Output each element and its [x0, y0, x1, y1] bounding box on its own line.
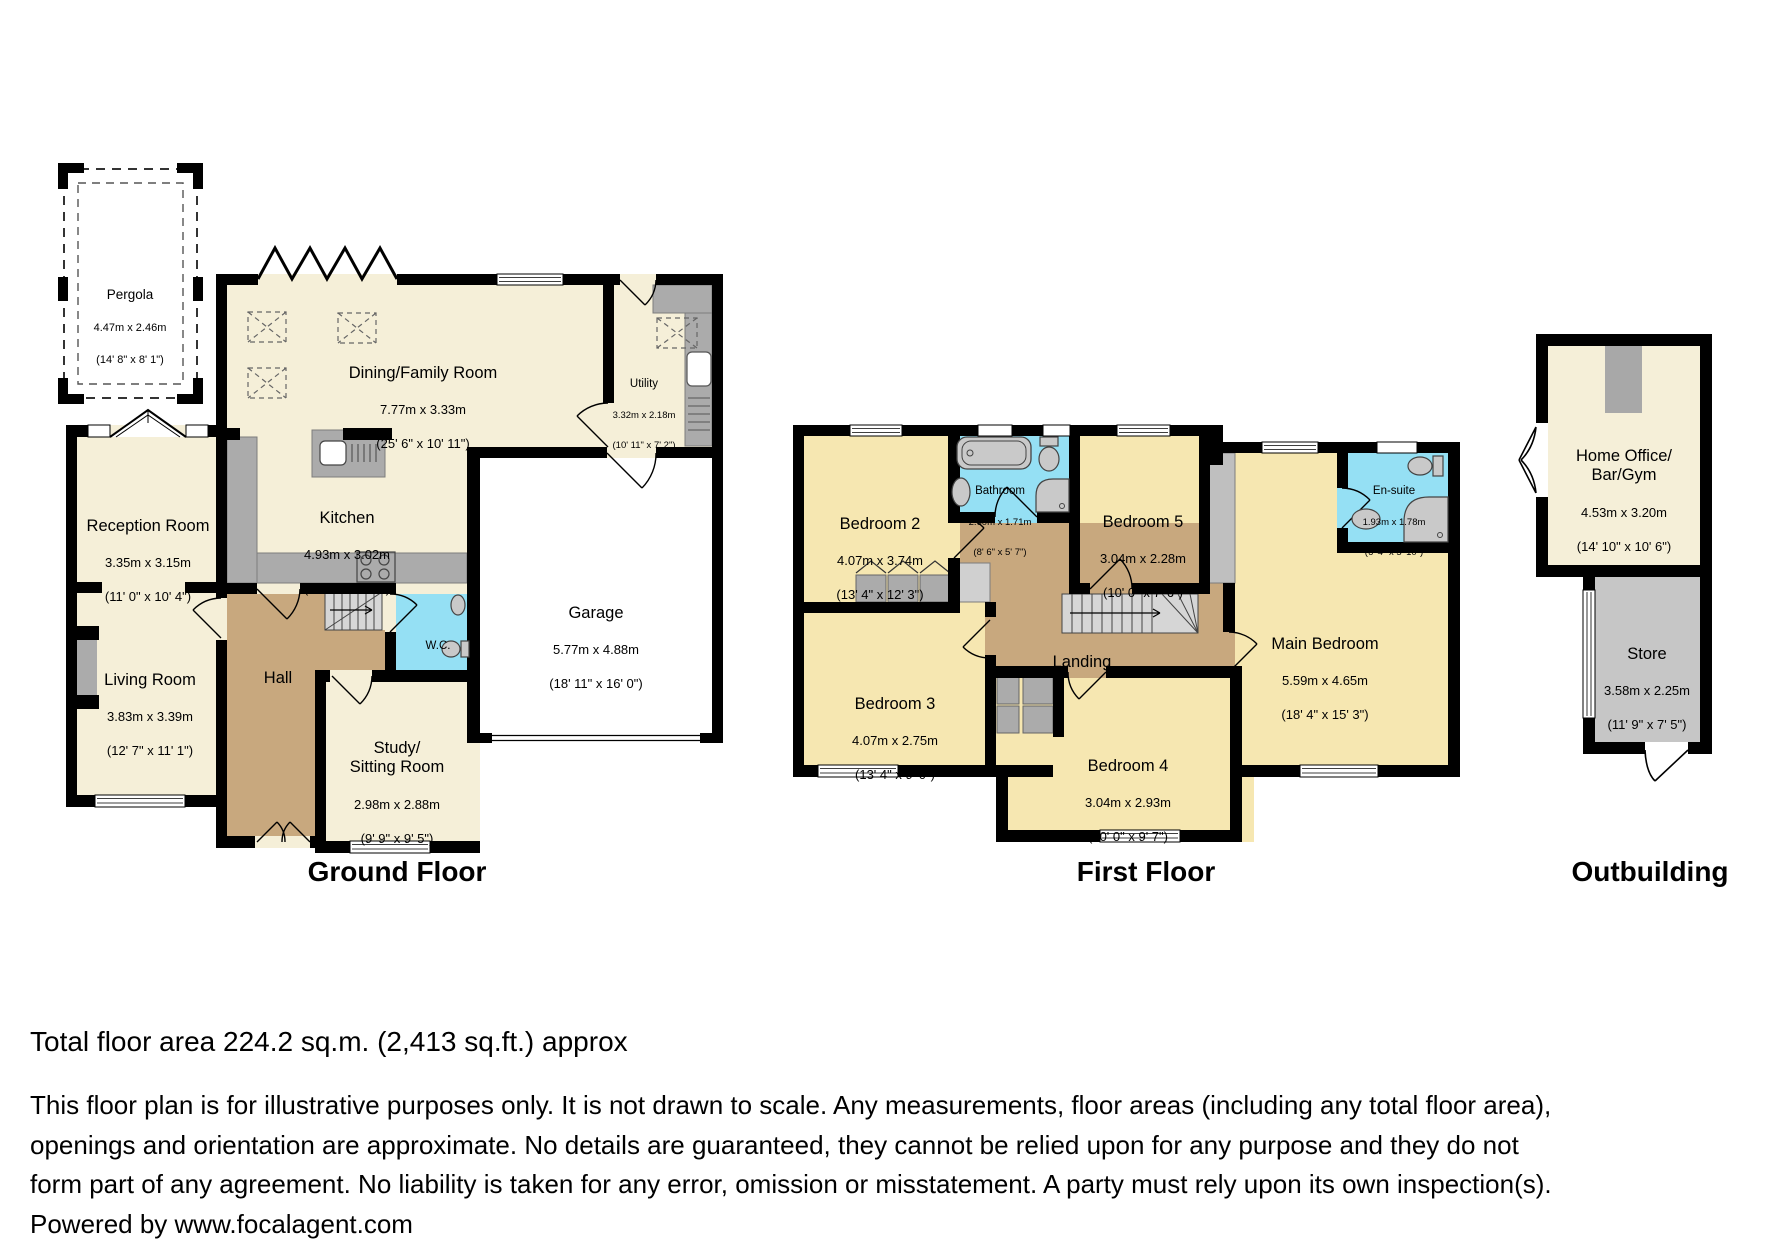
room-label-dining: Dining/Family Room 7.77m x 3.33m (25' 6"… — [349, 345, 498, 471]
room-label-store: Store 3.58m x 2.25m (11' 9" x 7' 5") — [1604, 626, 1690, 752]
room-label-wc: W.C. — [426, 621, 451, 672]
chimney — [1605, 346, 1642, 413]
landing-cupboards — [997, 676, 1053, 733]
room-label-bathroom: Bathroom 2.60m x 1.71m (8' 6" x 5' 7") — [969, 466, 1032, 577]
room-label-main-bedroom: Main Bedroom 5.59m x 4.65m (18' 4" x 15'… — [1271, 616, 1378, 742]
room-label-ensuite: En-suite 1.93m x 1.78m (6' 4" x 5' 10") — [1363, 466, 1426, 577]
room-label-landing: Landing — [1053, 634, 1112, 691]
room-label-bedroom3: Bedroom 3 4.07m x 2.75m (13' 4" x 9' 0") — [852, 676, 938, 802]
room-label-pergola: Pergola 4.47m x 2.46m (14' 8" x 8' 1") — [94, 268, 167, 385]
room-floor-hall — [227, 594, 325, 836]
room-label-bedroom5: Bedroom 5 3.04m x 2.28m (10' 0" x 7' 6") — [1100, 494, 1186, 620]
floorplan-page: Pergola 4.47m x 2.46m (14' 8" x 8' 1") D… — [0, 0, 1771, 1239]
room-label-hall: Hall — [264, 650, 292, 707]
room-label-living: Living Room 3.83m x 3.39m (12' 7" x 11' … — [104, 652, 196, 778]
room-label-home-office: Home Office/ Bar/Gym 4.53m x 3.20m (14' … — [1576, 428, 1672, 573]
floor-title-first: First Floor — [1077, 856, 1215, 888]
room-label-study: Study/ Sitting Room 2.98m x 2.88m (9' 9"… — [350, 720, 444, 865]
room-label-utility: Utility 3.32m x 2.18m (10' 11" x 7' 2") — [612, 359, 675, 470]
room-label-bedroom4: Bedroom 4 3.04m x 2.93m (10' 0" x 9' 7") — [1085, 738, 1171, 864]
room-label-garage: Garage 5.77m x 4.88m (18' 11" x 16' 0") — [549, 585, 642, 711]
floor-title-outbuilding: Outbuilding — [1571, 856, 1728, 888]
garage-door — [480, 733, 712, 743]
floor-title-ground: Ground Floor — [308, 856, 487, 888]
total-floor-area: Total floor area 224.2 sq.m. (2,413 sq.f… — [30, 1026, 628, 1058]
outbuilding-windows — [1583, 590, 1595, 718]
room-label-reception: Reception Room 3.35m x 3.15m (11' 0" x 1… — [87, 498, 210, 624]
disclaimer-text: This floor plan is for illustrative purp… — [30, 1086, 1562, 1239]
room-label-bedroom2: Bedroom 2 4.07m x 3.74m (13' 4" x 12' 3"… — [836, 496, 923, 622]
room-label-kitchen: Kitchen 4.93m x 3.02m (16' 2" x 9' 11") — [304, 490, 390, 616]
